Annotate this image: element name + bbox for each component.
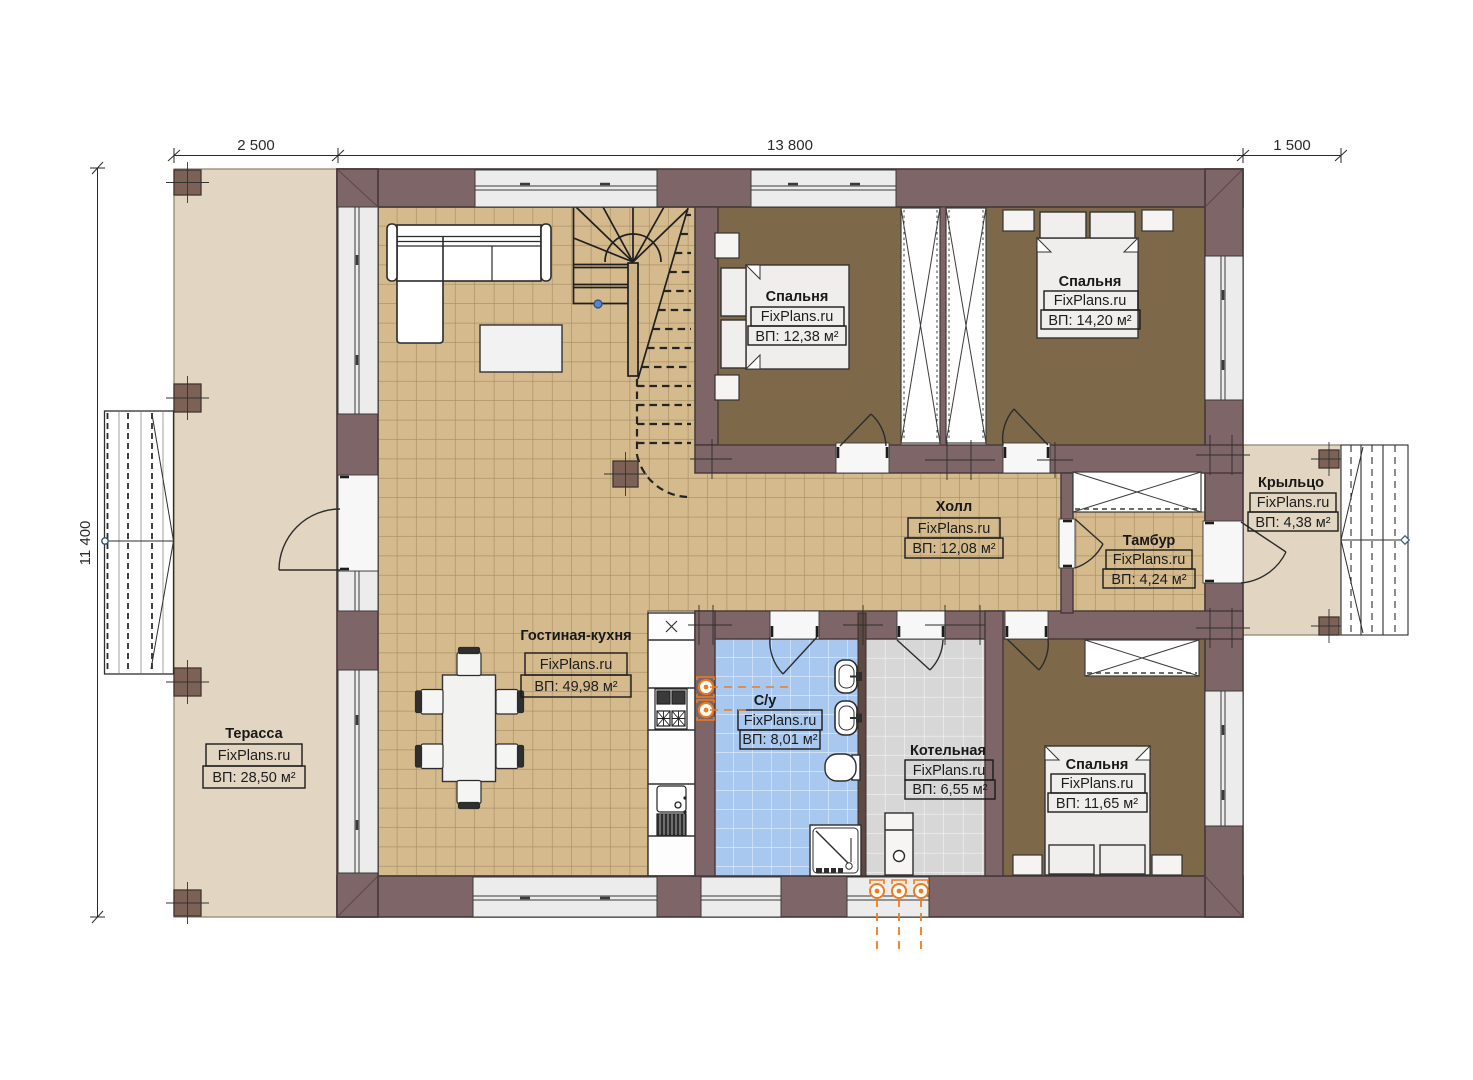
svg-text:Терасса: Терасса (225, 726, 283, 742)
svg-text:Спальня: Спальня (1059, 274, 1122, 290)
svg-text:FixPlans.ru: FixPlans.ru (1061, 776, 1134, 792)
svg-text:FixPlans.ru: FixPlans.ru (540, 657, 613, 673)
svg-text:FixPlans.ru: FixPlans.ru (913, 763, 986, 779)
svg-text:ВП: 12,38 м²: ВП: 12,38 м² (755, 329, 838, 345)
svg-text:FixPlans.ru: FixPlans.ru (1054, 293, 1127, 309)
svg-text:FixPlans.ru: FixPlans.ru (744, 713, 817, 729)
svg-text:Котельная: Котельная (910, 743, 986, 759)
svg-text:2 500: 2 500 (237, 137, 275, 154)
svg-text:FixPlans.ru: FixPlans.ru (918, 521, 991, 537)
svg-text:ВП: 4,24 м²: ВП: 4,24 м² (1111, 572, 1186, 588)
svg-text:FixPlans.ru: FixPlans.ru (1257, 495, 1330, 511)
svg-text:Гостиная-кухня: Гостиная-кухня (520, 628, 631, 644)
svg-text:Спальня: Спальня (1066, 757, 1129, 773)
svg-text:13 800: 13 800 (767, 137, 813, 154)
svg-text:Тамбур: Тамбур (1123, 533, 1176, 549)
svg-text:FixPlans.ru: FixPlans.ru (1113, 552, 1186, 568)
svg-text:С/у: С/у (754, 693, 777, 709)
svg-text:ВП: 28,50 м²: ВП: 28,50 м² (212, 770, 295, 786)
svg-text:ВП: 11,65 м²: ВП: 11,65 м² (1056, 796, 1138, 812)
svg-text:ВП: 6,55 м²: ВП: 6,55 м² (912, 782, 987, 798)
svg-text:Спальня: Спальня (766, 289, 829, 305)
svg-text:ВП: 8,01 м²: ВП: 8,01 м² (742, 732, 817, 748)
svg-text:ВП: 4,38 м²: ВП: 4,38 м² (1255, 515, 1330, 531)
svg-text:FixPlans.ru: FixPlans.ru (218, 748, 291, 764)
svg-text:11 400: 11 400 (77, 521, 94, 566)
svg-text:ВП: 12,08 м²: ВП: 12,08 м² (912, 541, 995, 557)
svg-text:FixPlans.ru: FixPlans.ru (761, 309, 834, 325)
svg-text:ВП: 14,20 м²: ВП: 14,20 м² (1048, 313, 1131, 329)
svg-text:1 500: 1 500 (1273, 137, 1311, 154)
svg-text:Крыльцо: Крыльцо (1258, 475, 1324, 491)
svg-text:ВП: 49,98 м²: ВП: 49,98 м² (534, 679, 617, 695)
svg-text:Холл: Холл (936, 499, 972, 515)
